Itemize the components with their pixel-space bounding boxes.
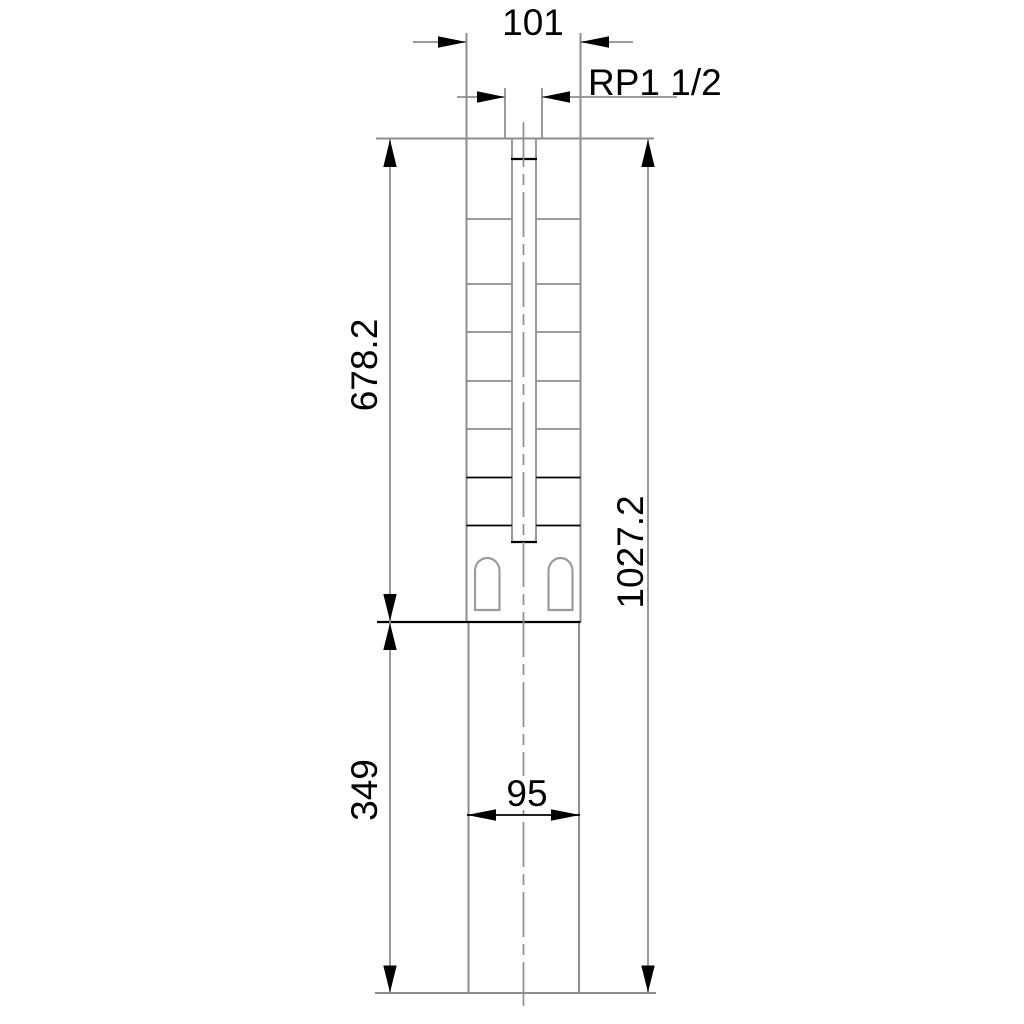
arrowhead-left-icon — [581, 36, 610, 48]
dimension-label-motor-width: 95 — [506, 773, 547, 814]
arrowhead-down-icon — [641, 966, 654, 993]
dimension-label-outlet-width: 101 — [502, 2, 564, 43]
arrowhead-up-icon — [641, 140, 654, 168]
dimension-label-motor-section-length: 349 — [344, 759, 385, 821]
arrowhead-right-icon — [551, 809, 580, 821]
arrowhead-left-icon — [542, 91, 570, 103]
arrowhead-left-icon — [467, 809, 496, 821]
arrowhead-right-icon — [438, 36, 467, 48]
arrowhead-down-icon — [383, 594, 396, 621]
dimension-label-pump-section-length: 678.2 — [344, 319, 385, 412]
arrowhead-up-icon — [383, 140, 396, 168]
arrowhead-down-icon — [383, 966, 396, 993]
dimension-outlet-width: 101 — [413, 2, 633, 48]
inlet-slot-right — [549, 558, 573, 610]
pump-dimension-drawing: 101 RP1 1/2 678.2 349 1027.2 — [0, 0, 1024, 1024]
arrowhead-up-icon — [383, 623, 396, 650]
dimension-thread: RP1 1/2 — [457, 62, 722, 103]
dimension-motor-width: 95 — [467, 773, 580, 821]
dimension-pump-and-motor-length: 678.2 349 — [344, 139, 397, 993]
inlet-slot-left — [475, 558, 500, 610]
arrowhead-right-icon — [477, 91, 505, 103]
dimension-label-thread: RP1 1/2 — [588, 62, 722, 103]
drawing-canvas: 101 RP1 1/2 678.2 349 1027.2 — [0, 0, 1024, 1024]
dimension-overall-length: 1027.2 — [610, 139, 655, 993]
dimension-label-overall-length: 1027.2 — [610, 495, 651, 608]
